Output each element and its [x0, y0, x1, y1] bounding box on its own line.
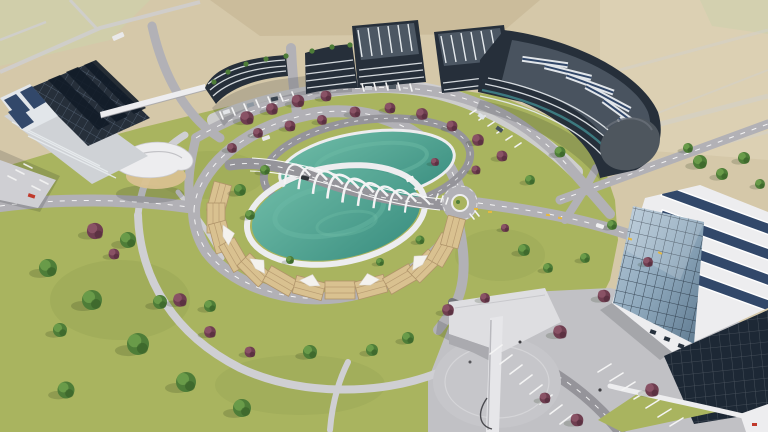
yellow-bench: [474, 208, 478, 210]
yellow-bench: [488, 211, 492, 213]
red-accent: [752, 423, 757, 426]
parked-car: [365, 86, 372, 90]
pedestrian: [519, 341, 522, 344]
tower-solar-roof: [356, 23, 419, 60]
pedestrian: [469, 361, 472, 364]
parked-car: [389, 85, 396, 89]
architectural-rendering: [0, 0, 768, 432]
rendering-canvas: [0, 0, 768, 432]
pergola-deck: [325, 281, 355, 299]
scooter: [598, 388, 601, 391]
